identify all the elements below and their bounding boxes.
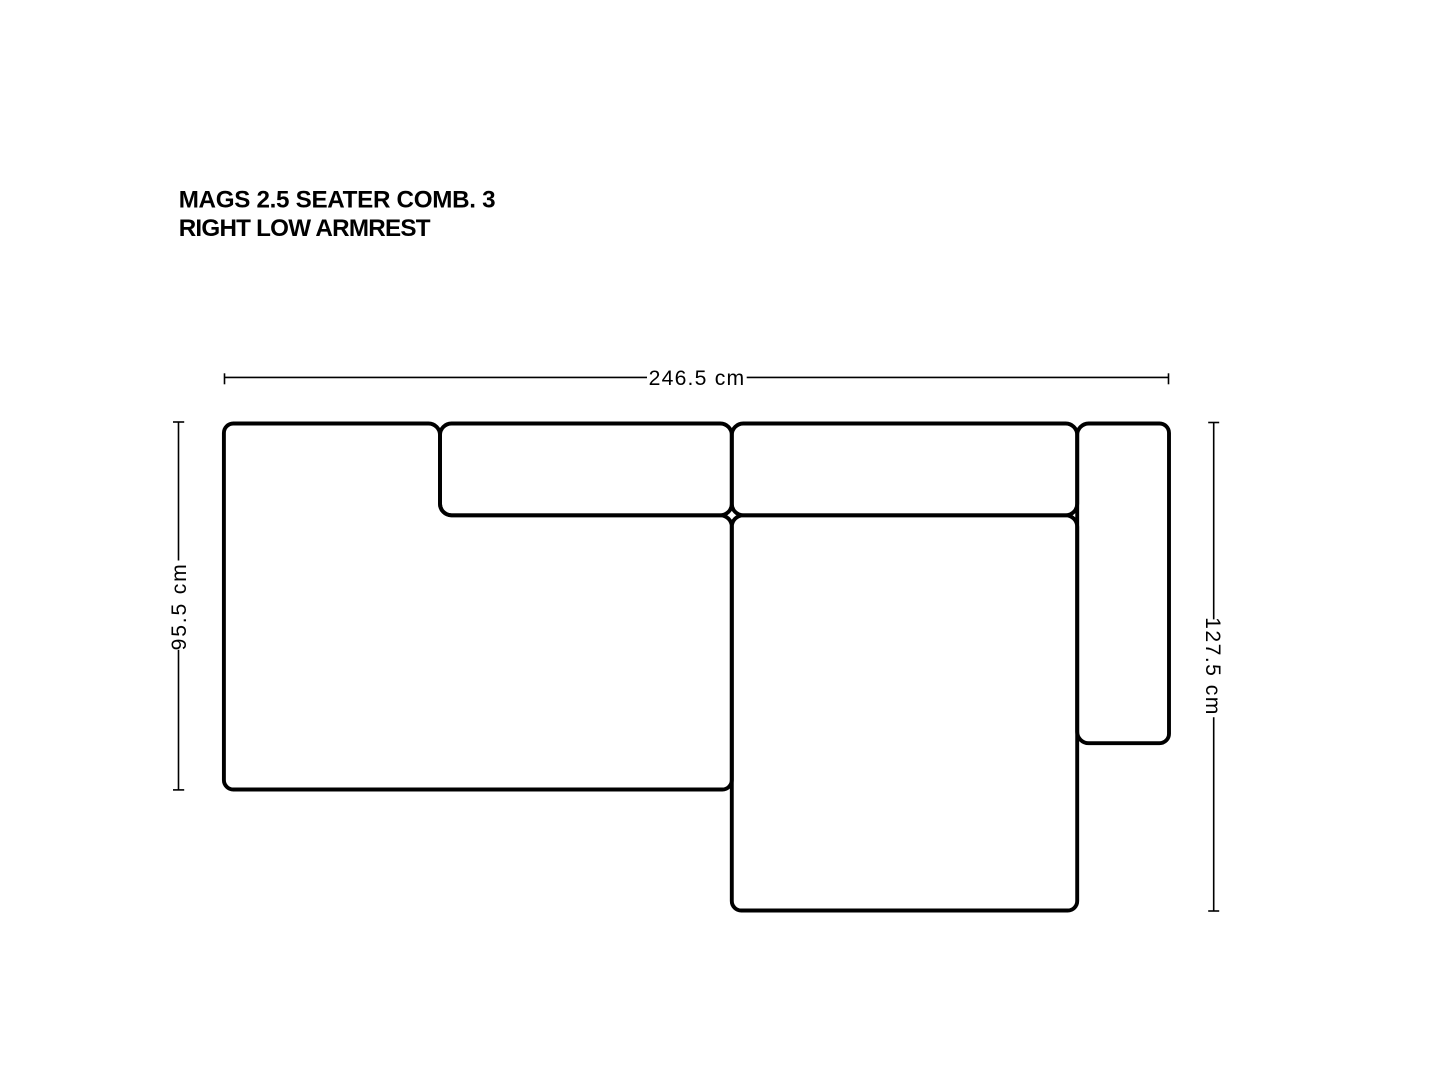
svg-text:RIGHT LOW ARMREST: RIGHT LOW ARMREST [179,215,431,242]
svg-text:95.5 cm: 95.5 cm [168,562,191,650]
svg-text:MAGS 2.5 SEATER COMB. 3: MAGS 2.5 SEATER COMB. 3 [179,187,496,214]
svg-text:127.5 cm: 127.5 cm [1201,617,1224,716]
svg-text:246.5 cm: 246.5 cm [649,367,746,390]
